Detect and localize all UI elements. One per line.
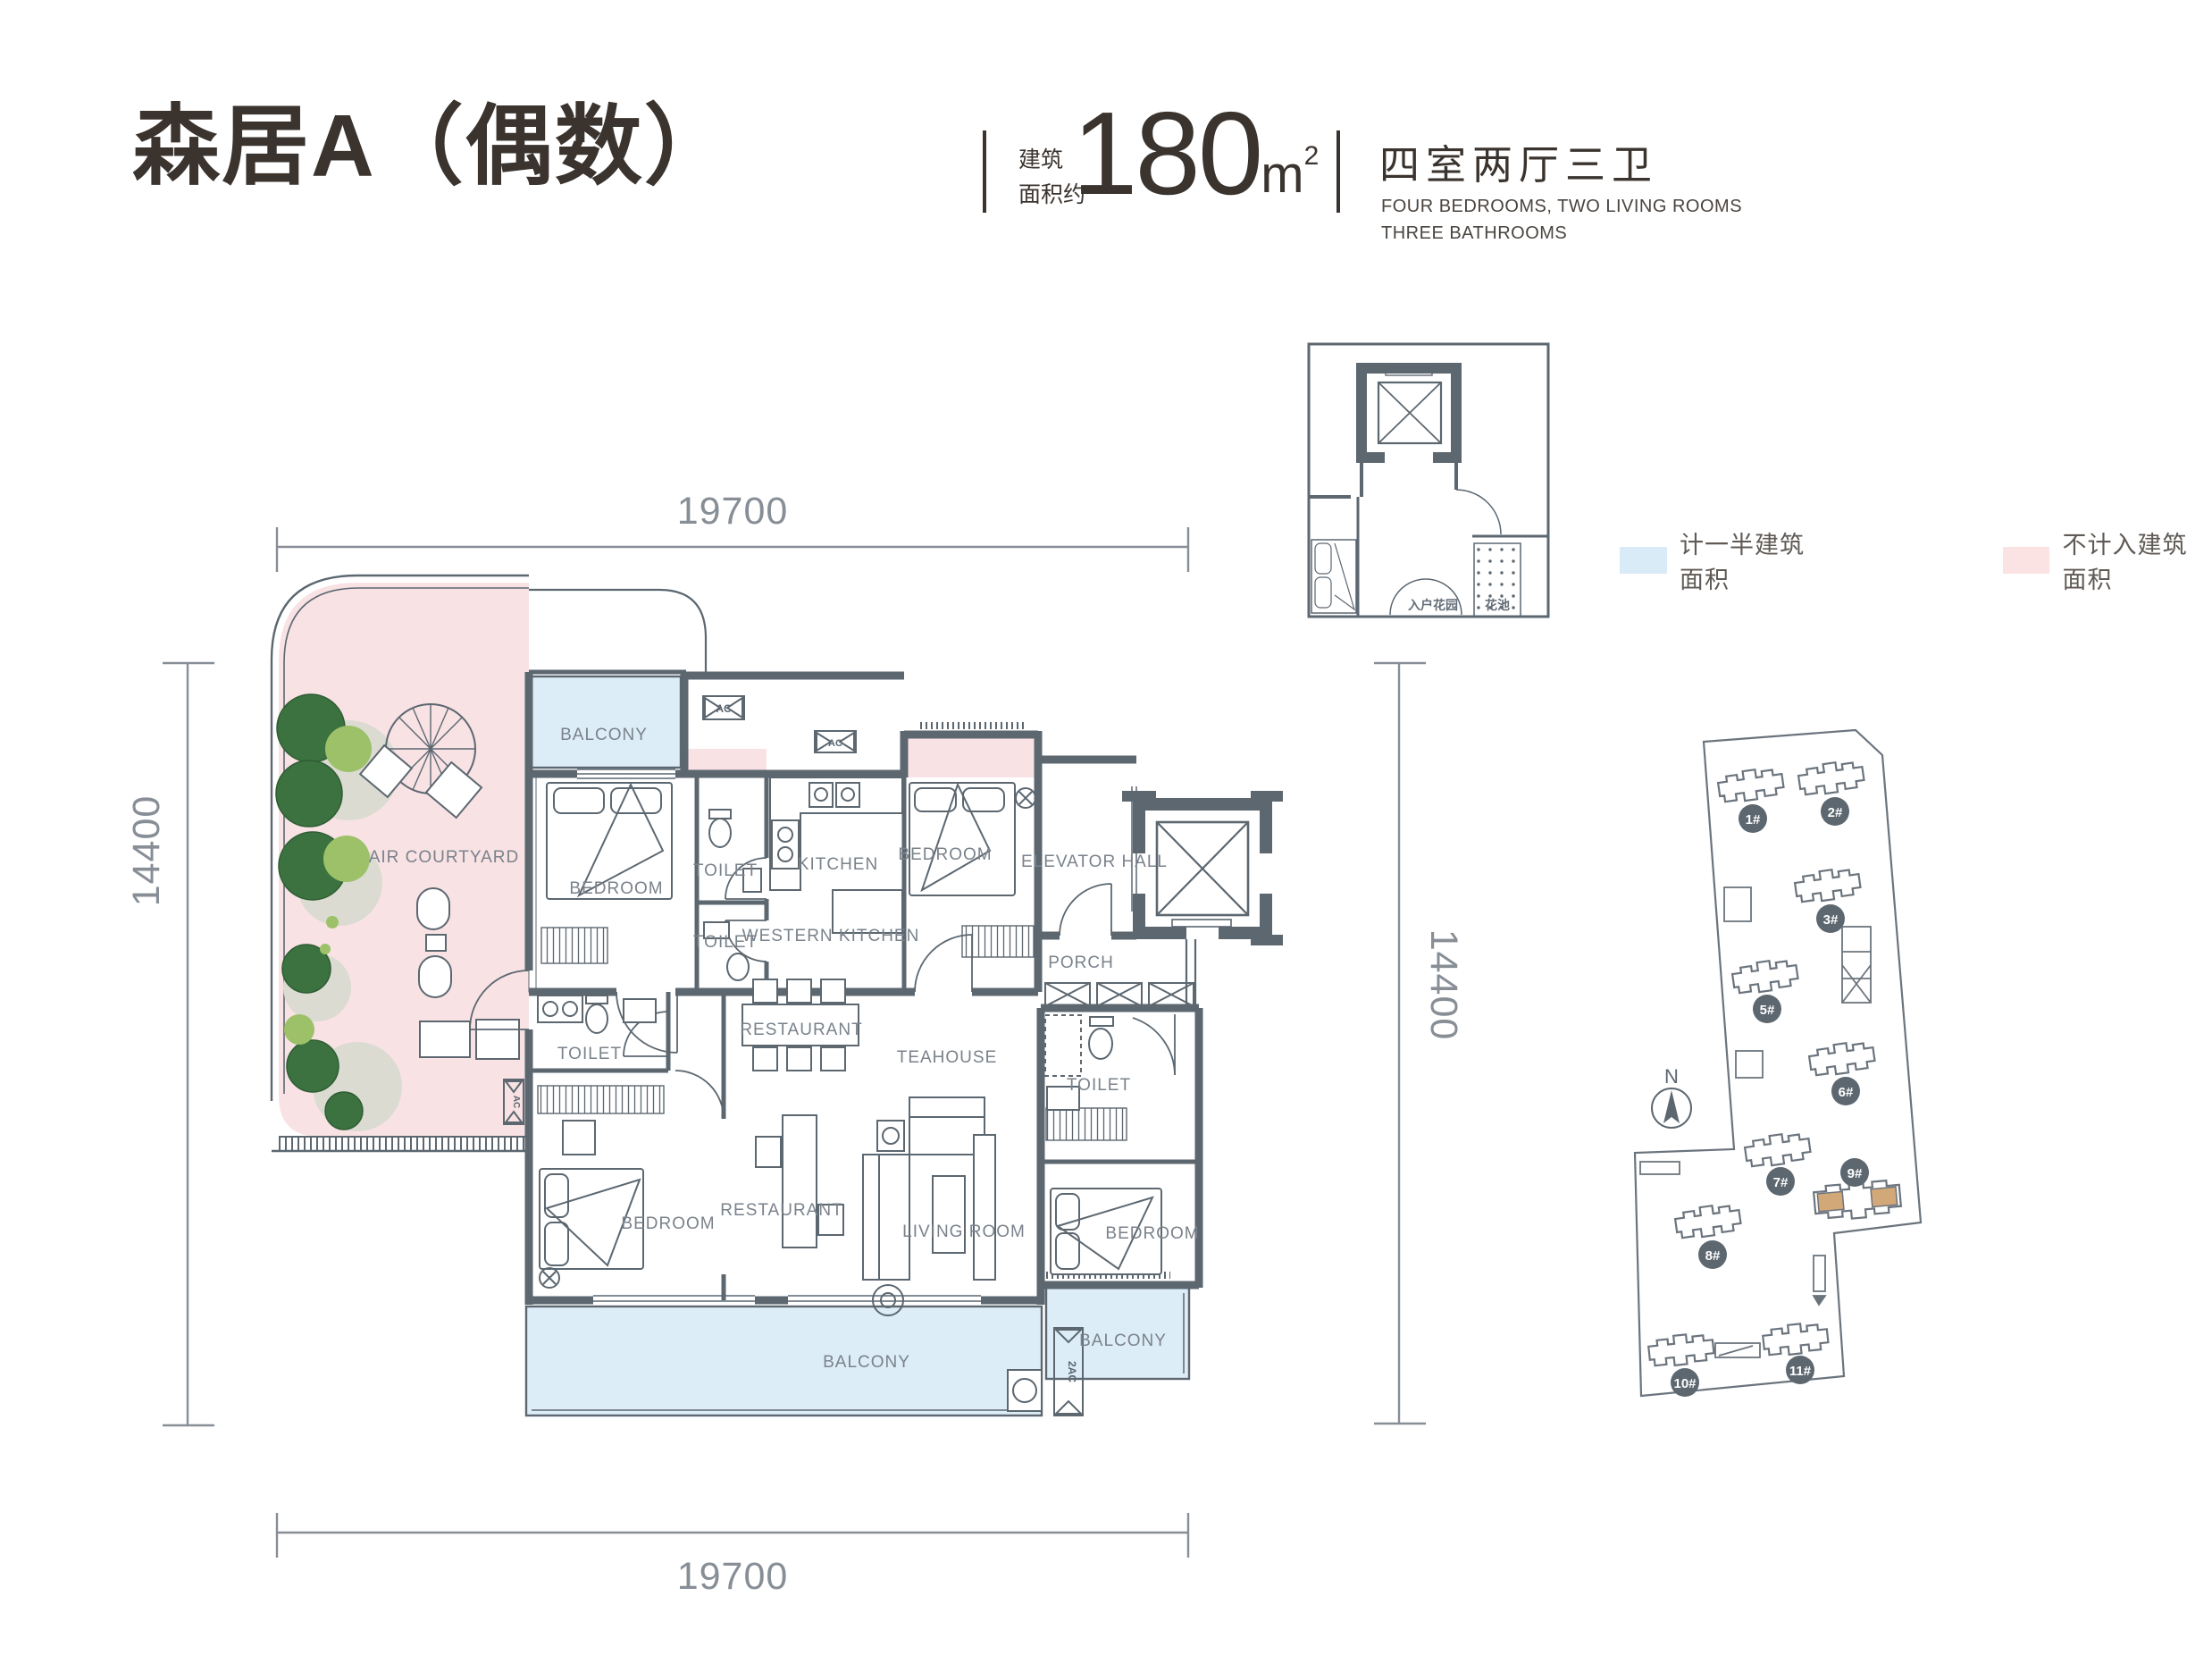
label-bedroom-2: BEDROOM xyxy=(898,845,992,864)
label-restaurant-2: RESTAURANT xyxy=(720,1201,842,1220)
floorplan-drawing: 19700 19700 14400 14400 xyxy=(0,0,2212,1655)
label-kitchen: KITCHEN xyxy=(798,855,878,874)
label-restaurant-1: RESTAURANT xyxy=(740,1021,862,1039)
label-elevator-hall: ELEVATOR HALL xyxy=(1021,853,1168,871)
north-label: N xyxy=(1664,1065,1679,1088)
dimension-top-value: 19700 xyxy=(677,490,789,533)
label-toilet-4: TOILET xyxy=(1067,1076,1131,1095)
dimension-bottom xyxy=(277,1513,1188,1558)
label-living-room: LIVING ROOM xyxy=(902,1222,1026,1241)
elevator-shaft xyxy=(1122,791,1283,1008)
label-bedroom-3: BEDROOM xyxy=(621,1214,715,1233)
siteplan-badge-1: 1# xyxy=(1746,812,1761,827)
label-western-kitchen: WESTERN KITCHEN xyxy=(742,927,920,945)
label-toilet-1: TOILET xyxy=(693,861,758,880)
label-air-courtyard: AIR COURTYARD xyxy=(369,848,520,867)
label-balcony-right: BALCONY xyxy=(1079,1332,1167,1350)
siteplan-badge-2: 2# xyxy=(1828,805,1843,820)
balcony-bottom-fill xyxy=(526,1306,1042,1416)
ac-label-3: 2AC xyxy=(1066,1361,1078,1382)
siteplan-badge-3: 3# xyxy=(1823,912,1839,928)
label-bedroom-4: BEDROOM xyxy=(1105,1224,1199,1243)
ac-platform-boxes xyxy=(1045,983,1194,1006)
siteplan: 1# 2# 3# 5# 6# 7# 8# 9# 10# 11# N xyxy=(1635,730,1921,1397)
siteplan-badge-5: 5# xyxy=(1760,1003,1775,1018)
dimension-top xyxy=(277,527,1188,572)
label-balcony-top: BALCONY xyxy=(560,726,648,744)
ac-label-1: AC xyxy=(716,702,732,715)
dimension-left-value: 14400 xyxy=(125,795,168,907)
dimension-bottom-value: 19700 xyxy=(677,1555,789,1598)
label-toilet-3: TOILET xyxy=(557,1045,622,1063)
siteplan-badge-9: 9# xyxy=(1848,1166,1863,1181)
north-compass: N xyxy=(1652,1065,1691,1128)
keyplan: 入户花园 花池 xyxy=(1309,344,1548,617)
dimension-right xyxy=(1374,663,1426,1424)
label-teahouse: TEAHOUSE xyxy=(897,1048,998,1067)
siteplan-badge-6: 6# xyxy=(1839,1085,1854,1100)
ac-label-4: AC xyxy=(511,1096,521,1108)
balcony-top-fill xyxy=(529,676,681,768)
ac-label-2: AC xyxy=(828,738,842,749)
siteplan-badge-8: 8# xyxy=(1705,1248,1721,1264)
dimension-left xyxy=(163,663,214,1425)
siteplan-badge-11: 11# xyxy=(1789,1364,1812,1379)
siteplan-badge-10: 10# xyxy=(1673,1376,1697,1391)
label-bedroom-1: BEDROOM xyxy=(569,879,663,898)
label-balcony-bottom: BALCONY xyxy=(823,1353,910,1372)
dimension-right-value: 14400 xyxy=(1422,929,1465,1041)
label-porch: PORCH xyxy=(1048,954,1114,972)
siteplan-badge-7: 7# xyxy=(1773,1175,1789,1190)
keyplan-flower-bed-label: 花池 xyxy=(1485,598,1510,612)
keyplan-entry-garden-label: 入户花园 xyxy=(1408,598,1458,612)
